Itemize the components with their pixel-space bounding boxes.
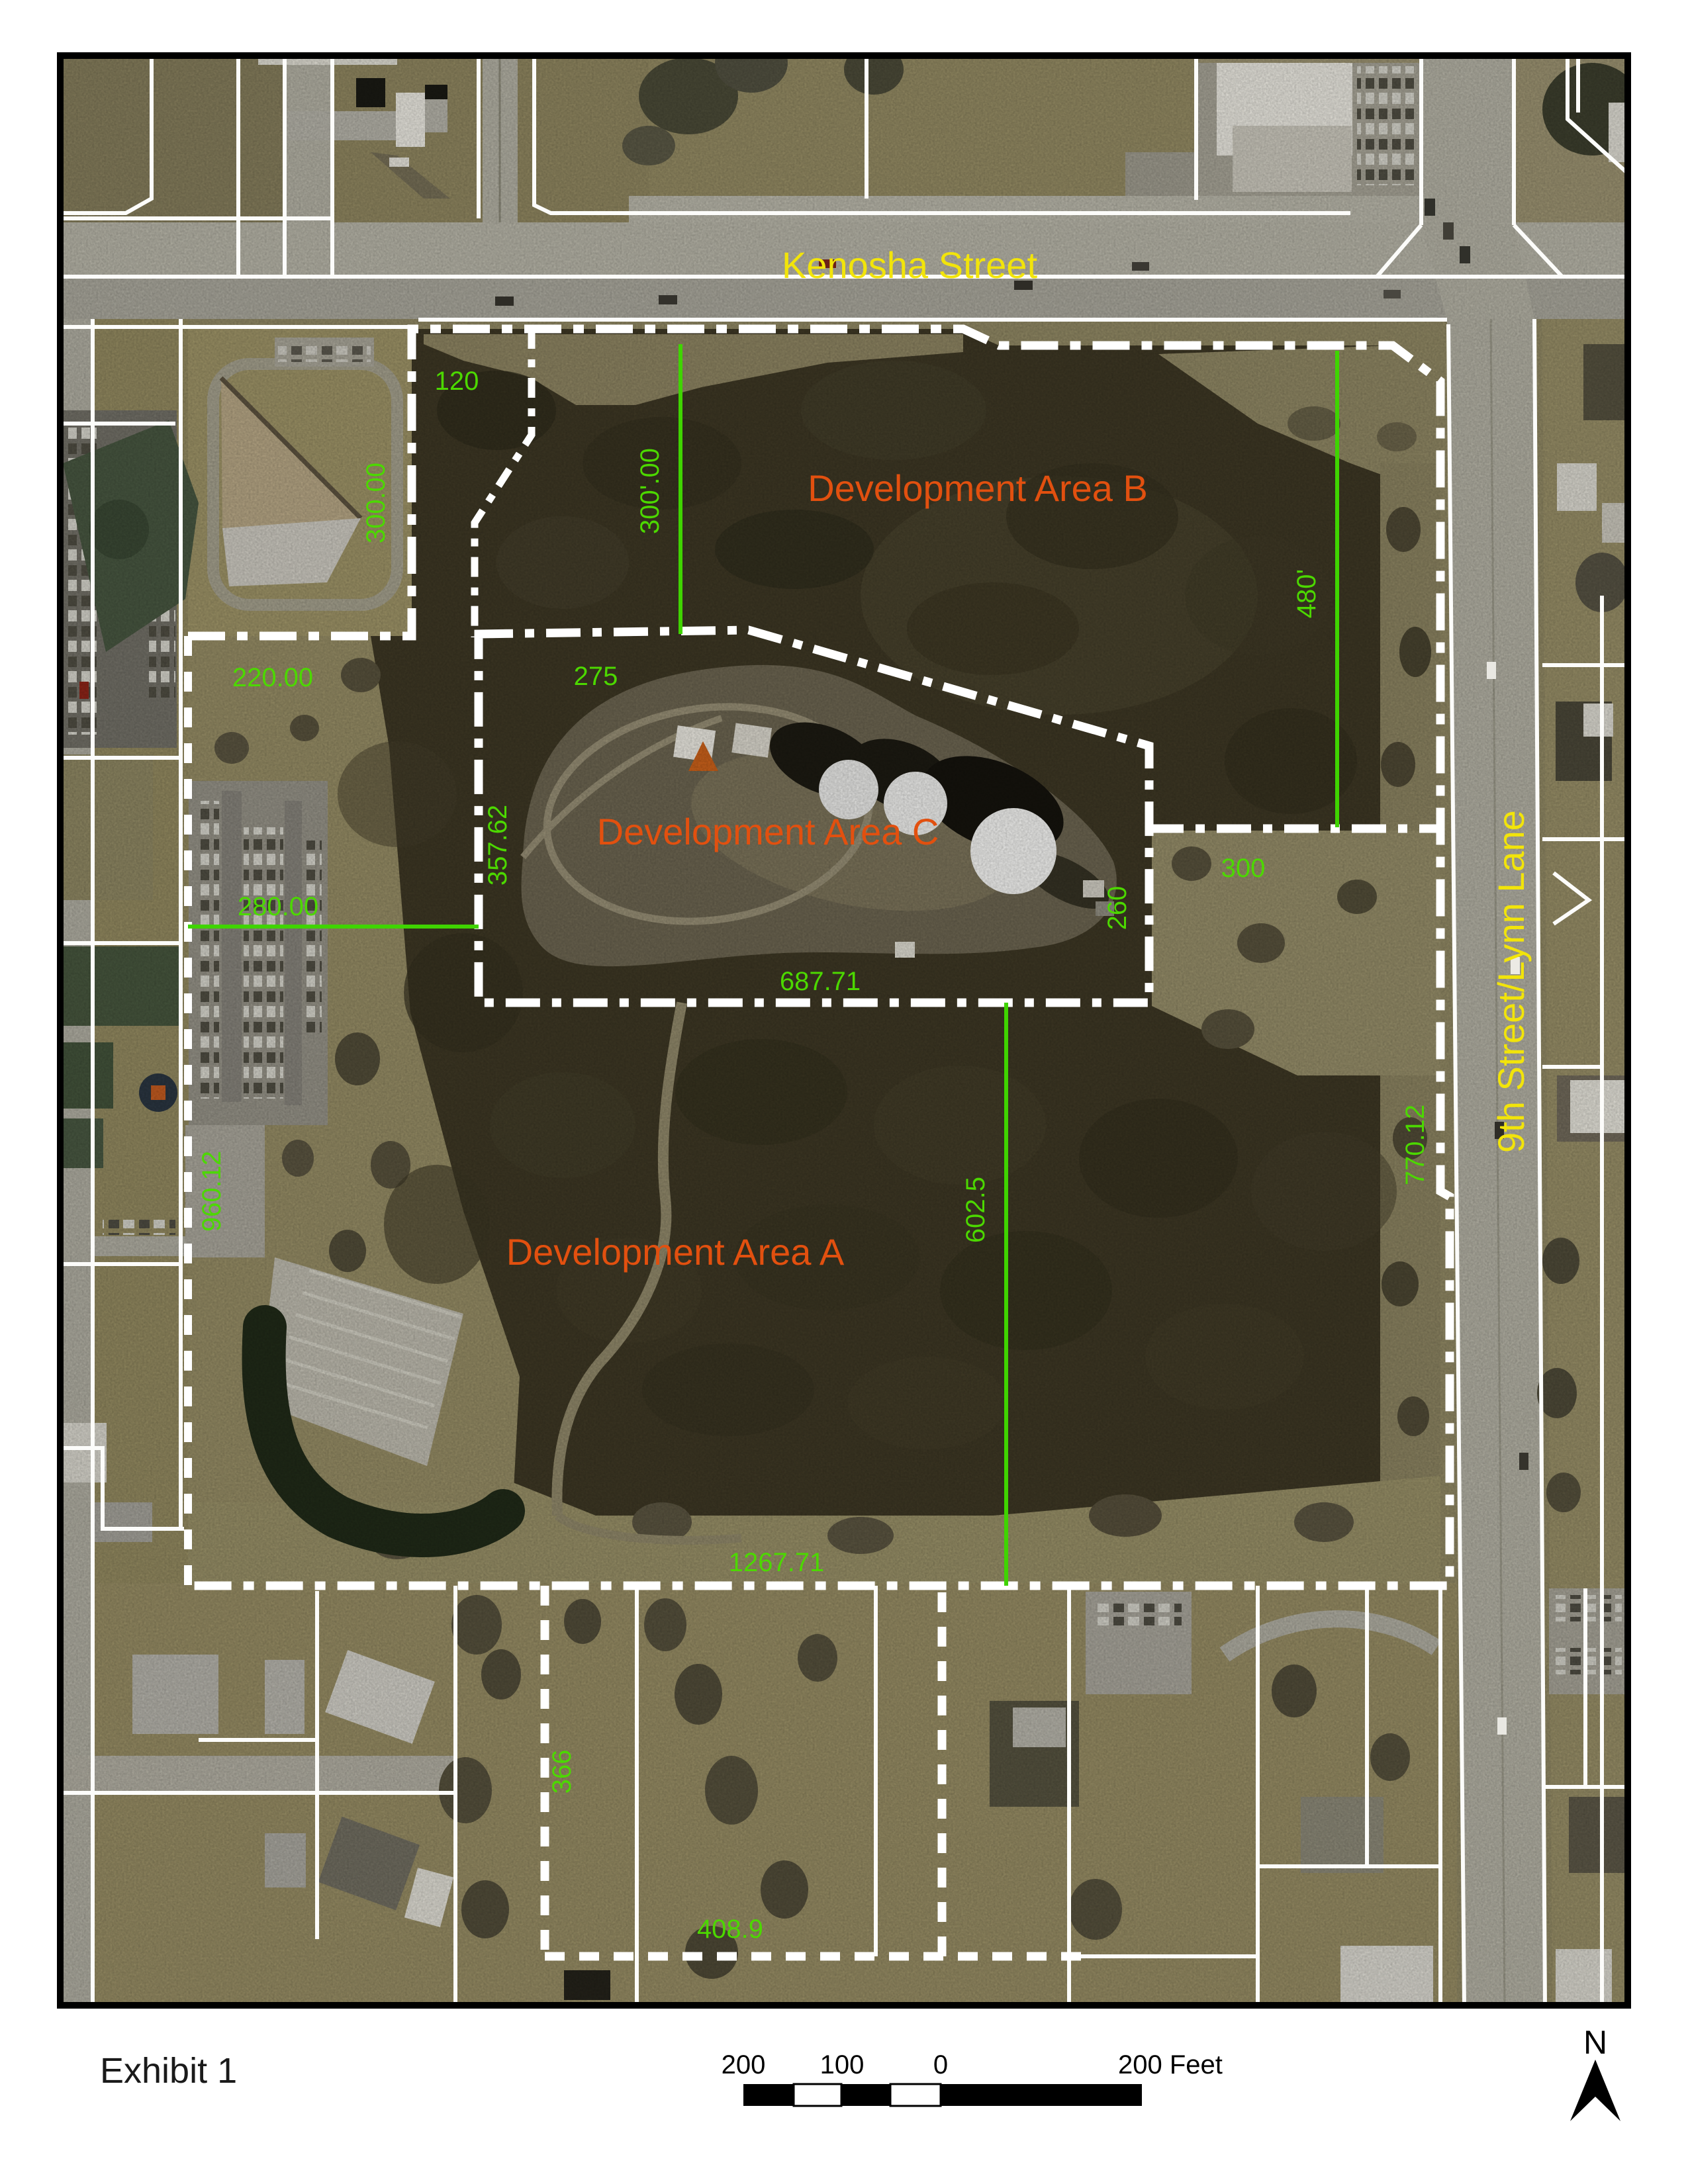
svg-text:275: 275 xyxy=(574,662,618,691)
svg-text:200 Feet: 200 Feet xyxy=(1118,2050,1223,2079)
svg-text:300'.00: 300'.00 xyxy=(635,448,665,534)
svg-text:480': 480' xyxy=(1292,569,1321,618)
svg-text:220.00: 220.00 xyxy=(232,663,313,692)
svg-text:687.71: 687.71 xyxy=(780,967,861,996)
svg-text:960.12: 960.12 xyxy=(197,1151,226,1232)
svg-text:N: N xyxy=(1583,2024,1607,2061)
svg-text:9th Street/Lynn Lane: 9th Street/Lynn Lane xyxy=(1490,810,1532,1153)
svg-text:1267.71: 1267.71 xyxy=(729,1548,825,1577)
svg-text:260: 260 xyxy=(1103,886,1132,931)
svg-text:300: 300 xyxy=(1221,854,1266,883)
svg-text:770.12: 770.12 xyxy=(1401,1105,1430,1185)
svg-text:120: 120 xyxy=(435,367,479,396)
svg-text:Development Area A: Development Area A xyxy=(506,1231,845,1273)
svg-text:366: 366 xyxy=(547,1750,577,1794)
svg-text:280.00: 280.00 xyxy=(238,892,318,921)
svg-text:357.62: 357.62 xyxy=(483,805,512,886)
svg-text:100: 100 xyxy=(820,2050,865,2079)
svg-text:602.5: 602.5 xyxy=(961,1177,990,1243)
svg-text:0: 0 xyxy=(933,2050,948,2079)
svg-text:300.00: 300.00 xyxy=(361,463,391,543)
svg-text:Exhibit 1: Exhibit 1 xyxy=(100,2051,237,2091)
svg-text:Development Area B: Development Area B xyxy=(808,467,1148,509)
svg-text:Kenosha Street: Kenosha Street xyxy=(782,244,1037,286)
svg-text:200: 200 xyxy=(722,2050,766,2079)
svg-text:408.9: 408.9 xyxy=(697,1915,763,1944)
svg-text:Development Area C: Development Area C xyxy=(597,811,939,852)
